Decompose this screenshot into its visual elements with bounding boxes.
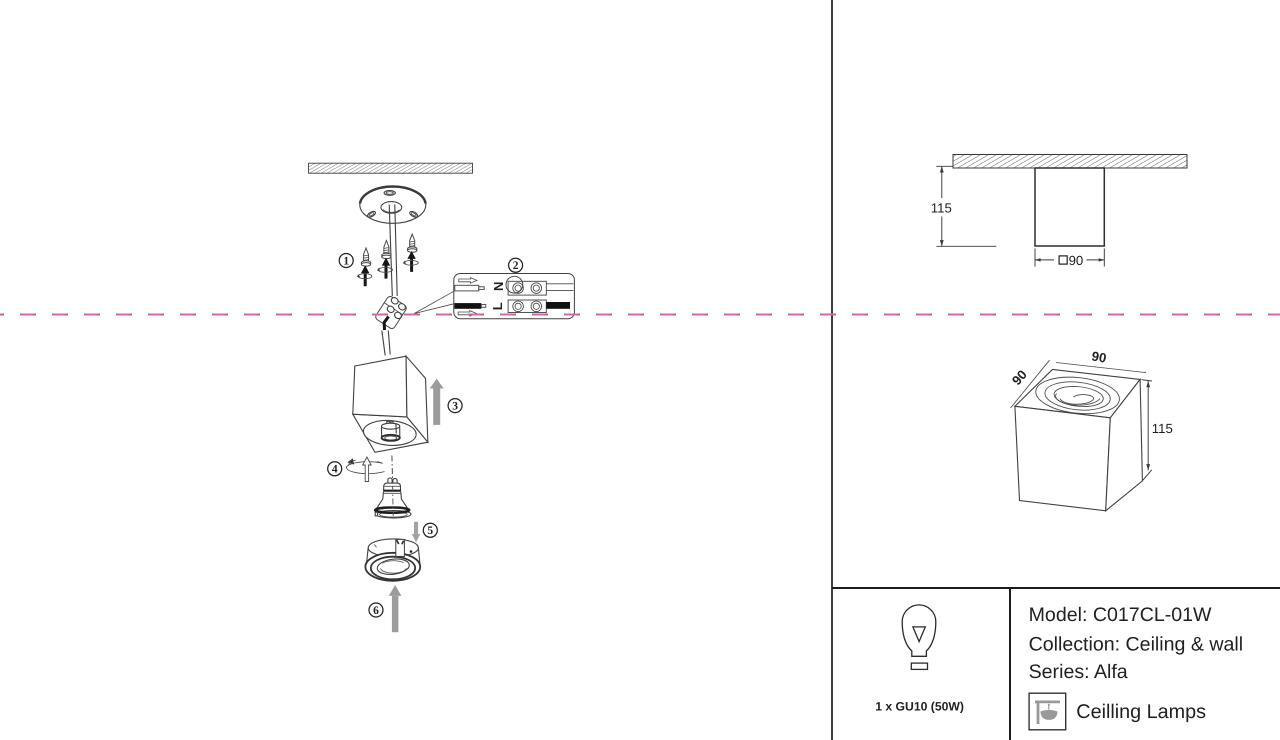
svg-text:115: 115 — [1152, 421, 1173, 436]
svg-text:90: 90 — [1090, 348, 1107, 365]
svg-text:90: 90 — [1069, 253, 1084, 268]
svg-text:6: 6 — [373, 605, 379, 617]
svg-text:Collection: Ceiling & wall: Collection: Ceiling & wall — [1029, 634, 1244, 656]
svg-text:3: 3 — [452, 401, 458, 413]
svg-text:1: 1 — [343, 255, 349, 267]
svg-text:115: 115 — [931, 200, 952, 215]
svg-text:Ceilling Lamps: Ceilling Lamps — [1076, 701, 1206, 723]
svg-text:2: 2 — [513, 260, 519, 272]
svg-text:L: L — [490, 302, 505, 310]
svg-text:5: 5 — [427, 525, 433, 537]
svg-text:Series: Alfa: Series: Alfa — [1029, 661, 1128, 683]
svg-text:Model: C017CL-01W: Model: C017CL-01W — [1029, 604, 1212, 626]
svg-text:1 x GU10 (50W): 1 x GU10 (50W) — [875, 700, 964, 714]
svg-text:N: N — [491, 282, 506, 291]
svg-text:4: 4 — [332, 464, 338, 476]
